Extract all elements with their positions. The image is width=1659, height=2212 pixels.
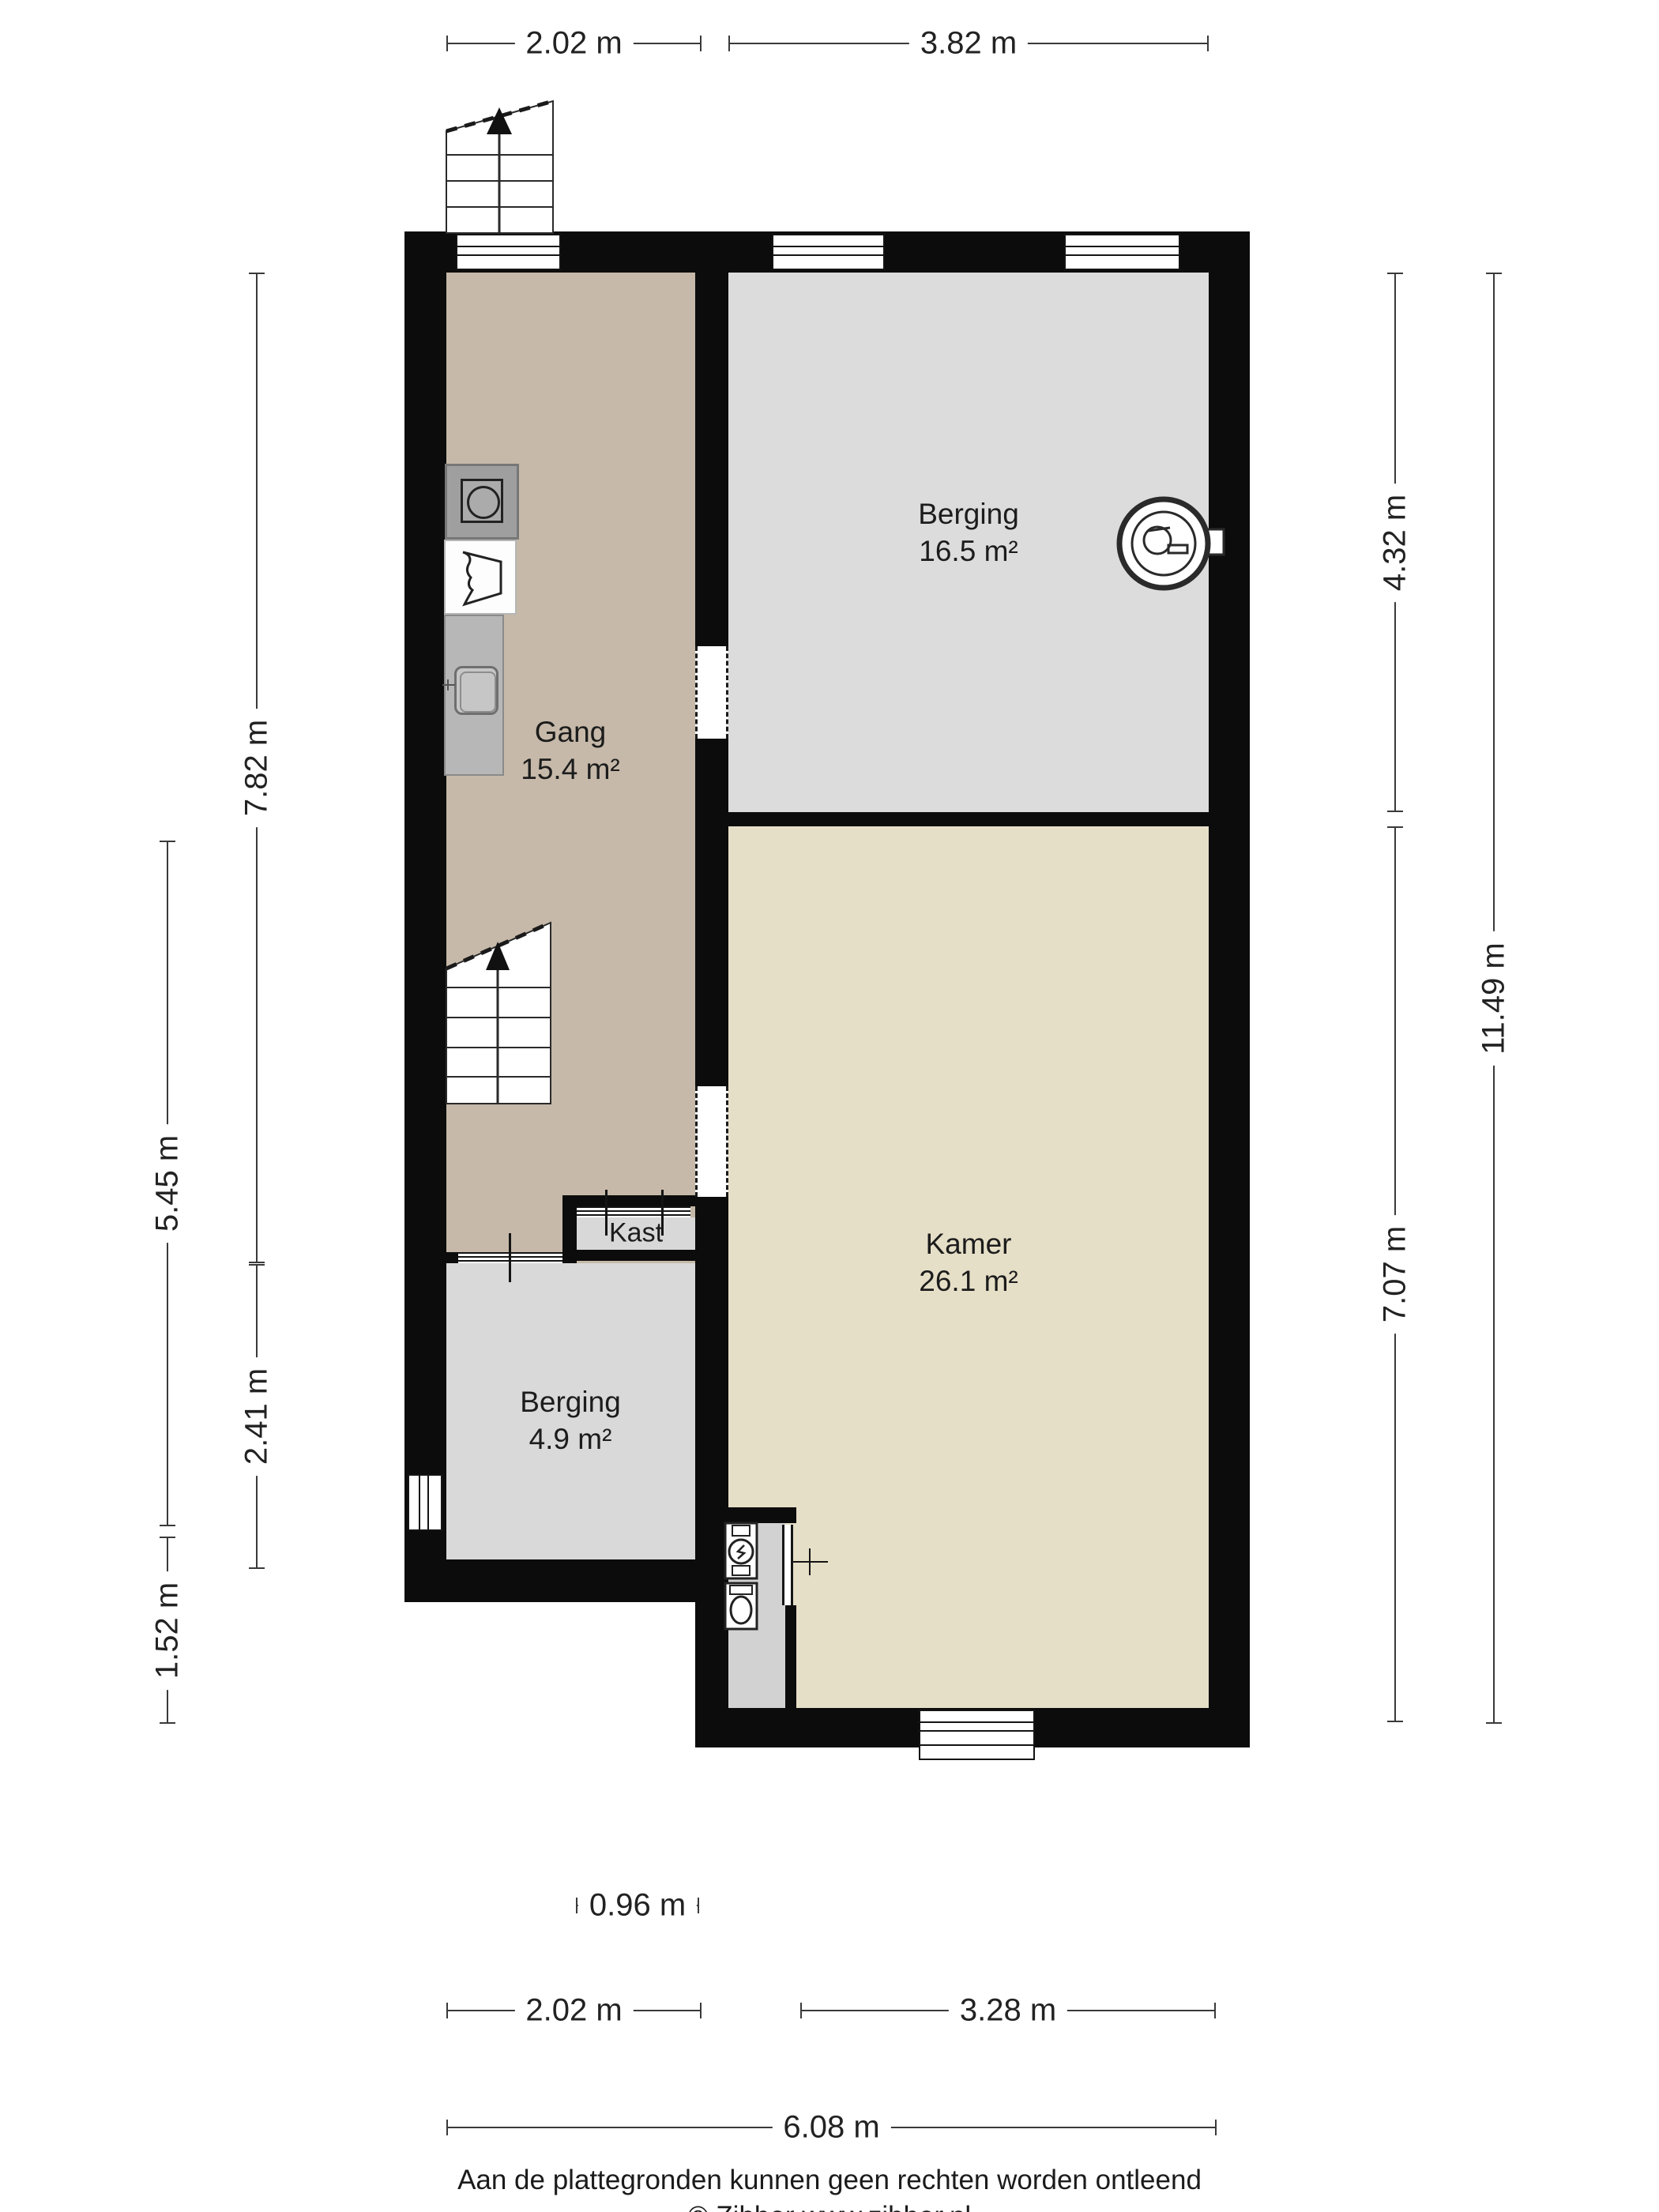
wall-left [404, 231, 446, 1602]
dimension-label: 1.52 m [150, 1571, 186, 1689]
room-label-kamer: Kamer 26.1 m² [919, 1225, 1018, 1300]
wall-berging-bottom [404, 1559, 728, 1602]
wall-right [1209, 231, 1250, 1747]
room-label-berging-top: Berging 16.5 m² [918, 495, 1019, 570]
berging-door-tick [509, 1233, 511, 1282]
dimension-label: 7.82 m [239, 709, 275, 827]
washing-machine-door [461, 479, 503, 523]
door-opening-gang-berging [695, 646, 728, 739]
door-opening-gang-kamer [695, 1086, 728, 1197]
dimension-label: 3.82 m [909, 26, 1028, 62]
dimension-label: 7.07 m [1378, 1215, 1413, 1334]
dimension-bottom-kast: 0.96 m [576, 1905, 699, 1906]
wall-gangdoor-stub [446, 1252, 458, 1263]
floorplan-page: Gang 15.4 m² Berging 16.5 m² Kamer 26.1 … [0, 0, 1659, 2212]
dimension-top-berging: 3.82 m [728, 43, 1209, 44]
wall-berging-kamer [728, 812, 1209, 826]
wall-mid-center [695, 739, 728, 1086]
dimension-label: 2.41 m [239, 1357, 275, 1476]
kitchen-counter [444, 615, 504, 776]
dimension-left-241: 2.41 m [256, 1264, 258, 1569]
window-berging-top-right-icon [1064, 234, 1180, 270]
room-name: Kast [609, 1215, 663, 1252]
room-name: Gang [521, 713, 619, 750]
kast-door-tick-left [605, 1190, 608, 1236]
room-label-kast: Kast [609, 1215, 663, 1252]
dimension-label: 2.02 m [514, 1993, 633, 2029]
dimension-label: 2.02 m [514, 26, 633, 62]
door-swing-mark-v [809, 1548, 811, 1575]
door-swing-mark-h [793, 1561, 828, 1563]
toilet-unit [724, 1522, 758, 1632]
room-area: 15.4 m² [521, 750, 619, 788]
dimension-right-1149: 11.49 m [1493, 273, 1495, 1724]
window-kamer-bottom-icon [919, 1710, 1035, 1746]
boiler-icon [1110, 488, 1228, 599]
dimension-label: 6.08 m [772, 2110, 890, 2146]
toilet-icon [725, 1583, 757, 1629]
dimension-label: 5.45 m [150, 1124, 186, 1243]
dimension-bottom-berging: 2.02 m [446, 2010, 702, 2011]
dimension-left-782: 7.82 m [256, 273, 258, 1263]
water-heater-icon [725, 1523, 757, 1578]
footer-disclaimer: Aan de plattegronden kunnen geen rechten… [0, 2165, 1659, 2196]
wall-kast-stub [562, 1195, 577, 1263]
room-name: Berging [918, 495, 1019, 532]
dimension-bottom-total: 6.08 m [446, 2127, 1217, 2128]
dimension-label: 4.32 m [1378, 483, 1413, 601]
room-name: Berging [520, 1383, 621, 1420]
room-label-gang: Gang 15.4 m² [521, 713, 619, 788]
window-kamer-bottom-sill [919, 1746, 1035, 1760]
dimension-left-545: 5.45 m [167, 841, 168, 1526]
dimension-right-707: 7.07 m [1394, 826, 1396, 1722]
washing-machine-icon [445, 464, 519, 540]
window-gang-top-icon [456, 234, 561, 270]
room-name: Kamer [919, 1225, 1018, 1262]
stairs-up-exterior-icon [441, 93, 558, 235]
toilet-door-icon [782, 1525, 793, 1605]
window-berging-top-left-icon [772, 234, 885, 270]
faucet-icon [442, 684, 455, 686]
dimension-label: 3.28 m [949, 1993, 1067, 2029]
dimension-bottom-kamer: 3.28 m [800, 2010, 1216, 2011]
room-area: 4.9 m² [520, 1420, 621, 1458]
kitchen-sink-icon [454, 666, 498, 715]
dimension-top-gang: 2.02 m [446, 43, 702, 44]
dimension-right-432: 4.32 m [1394, 273, 1396, 812]
wall-mid-upper [695, 273, 728, 646]
wall-alcove-top [728, 1507, 796, 1523]
dimension-label: 0.96 m [578, 1888, 697, 1924]
wall-kast-top [562, 1195, 695, 1206]
room-area: 16.5 m² [918, 532, 1019, 570]
dimension-left-152: 1.52 m [167, 1537, 168, 1724]
room-label-berging-bottom: Berging 4.9 m² [520, 1383, 621, 1458]
window-berging-bottom-left-icon [408, 1474, 442, 1531]
wall-alcove-stub [785, 1605, 796, 1708]
room-area: 26.1 m² [919, 1262, 1018, 1300]
laundry-basket-icon [444, 540, 517, 615]
footer-copyright: © Zibber www.zibber.nl [0, 2201, 1659, 2212]
stairs-up-gang-icon [445, 915, 555, 1106]
dimension-label: 11.49 m [1477, 931, 1512, 1066]
